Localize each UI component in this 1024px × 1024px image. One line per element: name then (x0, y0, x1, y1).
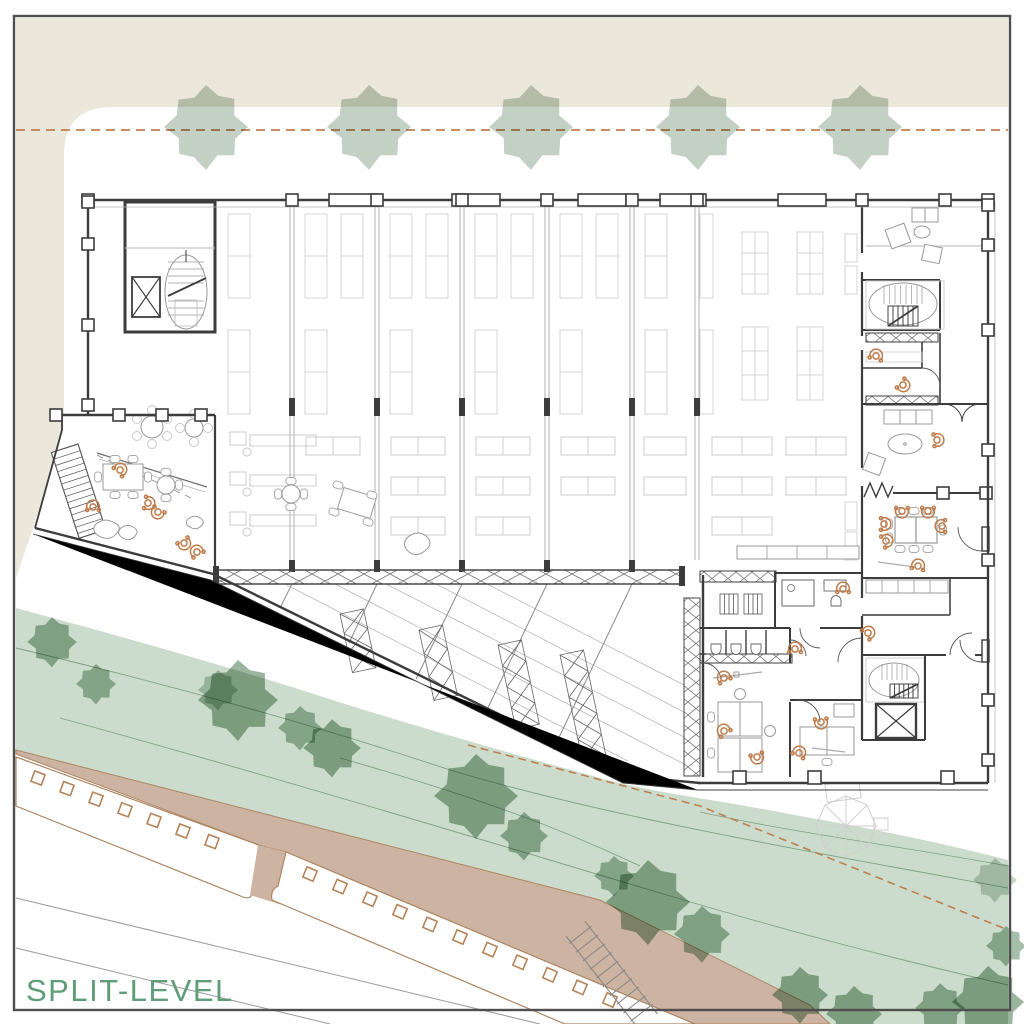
truss-wall-vertical (684, 598, 700, 776)
insulated-wall (866, 333, 938, 342)
insulated-wall (700, 654, 792, 663)
floor-plan-sheet: SPLIT-LEVEL (0, 0, 1024, 1024)
plan-title: SPLIT-LEVEL (26, 973, 234, 1008)
insulated-wall (700, 571, 776, 582)
left-stair-core (125, 202, 215, 332)
truss-band (215, 570, 683, 584)
